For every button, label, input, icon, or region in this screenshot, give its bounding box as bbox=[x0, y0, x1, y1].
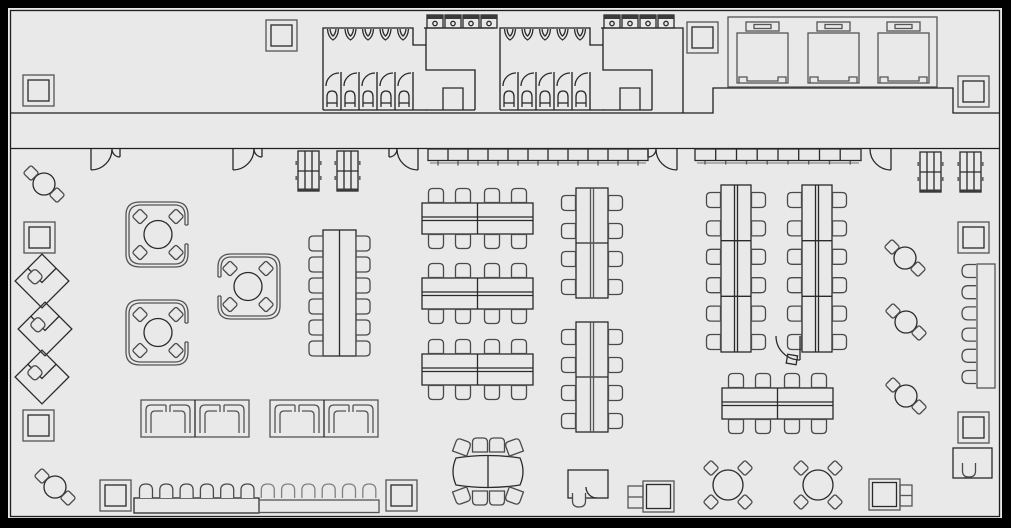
bar-stools-part-part bbox=[261, 484, 274, 498]
right-wall-counter-part bbox=[962, 286, 976, 299]
bar-stools-part-part bbox=[221, 484, 234, 498]
conference-table-part bbox=[490, 491, 505, 505]
bar-stools-part-part bbox=[282, 484, 295, 498]
bar-stools-part-part bbox=[160, 484, 173, 498]
bar-stools-part-part bbox=[343, 484, 356, 498]
l-desk-2-part bbox=[963, 463, 976, 477]
conference-table-part bbox=[473, 491, 488, 505]
bar-stools-part-part bbox=[200, 484, 213, 498]
right-wall-counter-part bbox=[962, 328, 976, 341]
floor-plan-page bbox=[0, 0, 1011, 528]
l-desk-1-part bbox=[573, 493, 586, 507]
right-wall-counter-part bbox=[962, 349, 976, 362]
bar-stools-part-part bbox=[322, 484, 335, 498]
conference-table-part bbox=[473, 438, 488, 452]
right-wall-counter-part bbox=[962, 265, 976, 278]
right-wall-counter-part bbox=[962, 371, 976, 384]
right-wall-counter-part bbox=[962, 307, 976, 320]
bar-stools-part-part bbox=[140, 484, 153, 498]
bar-stools-part-part bbox=[180, 484, 193, 498]
bar-stools-part-part bbox=[241, 484, 254, 498]
conference-table-part bbox=[490, 438, 505, 452]
bar-stools-part-part bbox=[363, 484, 376, 498]
floor-plan-canvas bbox=[0, 0, 1011, 528]
bar-stools-part-part bbox=[302, 484, 315, 498]
